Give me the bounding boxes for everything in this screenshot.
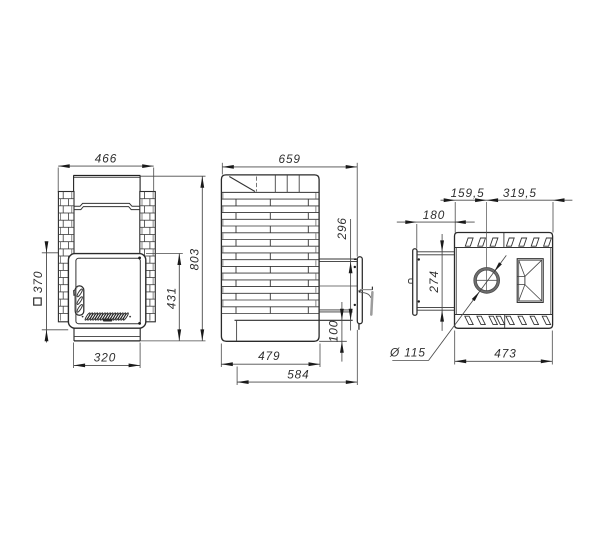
svg-text:274: 274 [427,270,441,293]
svg-text:431: 431 [164,287,178,309]
svg-text:370: 370 [31,271,45,293]
svg-text:584: 584 [287,367,309,381]
svg-text:803: 803 [188,248,202,270]
svg-text:159,5: 159,5 [451,186,485,200]
svg-text:466: 466 [95,151,117,165]
svg-text:Ø 115: Ø 115 [389,346,426,360]
svg-text:320: 320 [94,351,116,365]
svg-text:479: 479 [258,349,280,363]
svg-text:473: 473 [494,347,516,361]
svg-text:180: 180 [423,208,445,222]
svg-text:319,5: 319,5 [503,186,537,200]
svg-text:296: 296 [335,217,349,240]
svg-text:100: 100 [327,320,341,342]
svg-text:659: 659 [279,152,301,166]
